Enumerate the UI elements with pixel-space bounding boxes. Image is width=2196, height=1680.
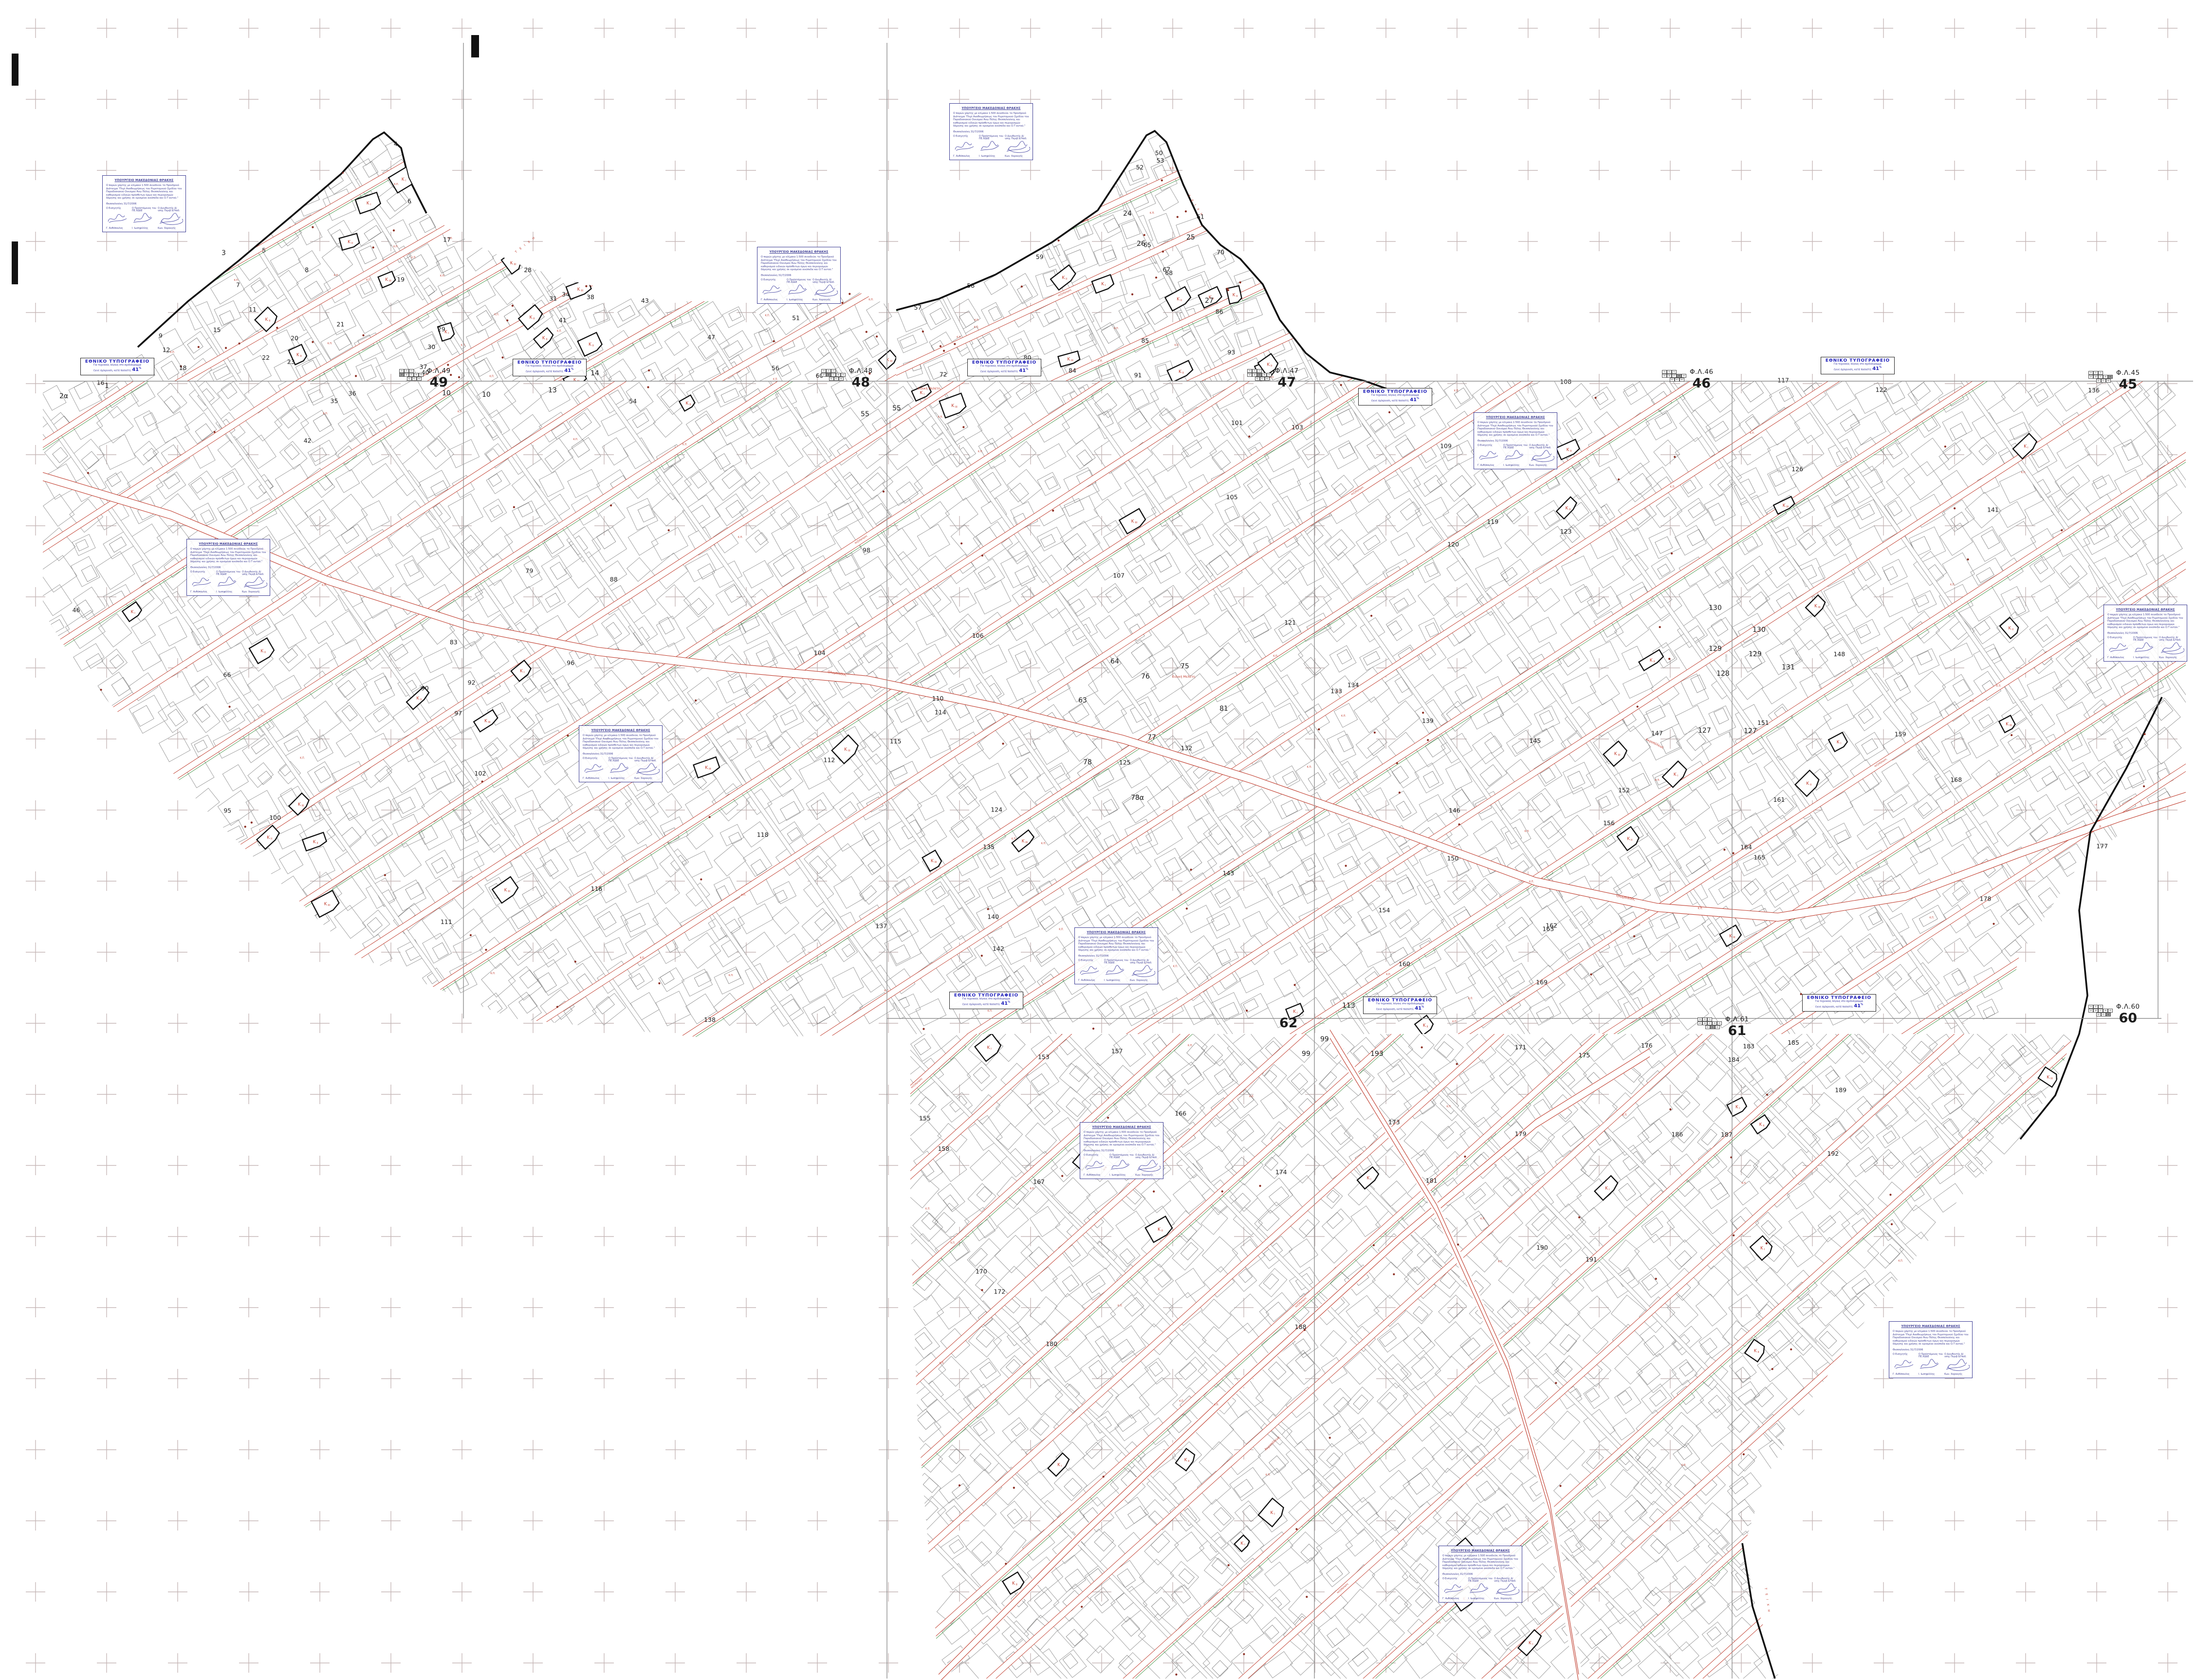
block-number: 109 xyxy=(1440,443,1452,450)
block-number: 166 xyxy=(1175,1109,1186,1117)
block-number: 132 xyxy=(1181,744,1192,752)
stamp-signature-names: Γ. Ανθόπουλος Ι. Ιωσηφέλλης Κων. Χαραυγή… xyxy=(1477,464,1553,467)
block-number: 128 xyxy=(1716,670,1730,678)
stamp-signature-names: Γ. Ανθόπουλος Ι. Ιωσηφέλλης Κων. Χαραυγή… xyxy=(106,227,182,230)
reduction-percent: 41 xyxy=(1410,397,1417,403)
block-number: 53 xyxy=(1156,157,1164,164)
sheet-number: 62 xyxy=(1279,1016,1298,1030)
block-number: 58 xyxy=(967,282,975,289)
locator-cell-31: 31 xyxy=(1672,370,1677,374)
printing-office-line2: έγινε σμίκρυνση, κατά ποσοστό, 41% xyxy=(83,367,152,373)
stamp-title: ΥΠΟΥΡΓΕΙΟ ΜΑΚΕΔΟΝΙΑΣ ΘΡΑΚΗΣ xyxy=(1078,931,1154,934)
stamp-date: Θεσσαλονίκη 31/7/2006 xyxy=(1477,440,1553,443)
stamp-body: Ο παρών χάρτης με κλίμακα 1:500 συνοδεύε… xyxy=(2107,613,2183,629)
printing-office-line2: έγινε σμίκρυνση, κατά ποσοστό, 41% xyxy=(1366,1006,1435,1012)
stamp-body: Ο παρών χάρτης με κλίμακα 1:500 συνοδεύε… xyxy=(106,184,182,200)
locator-cell-45: 45 xyxy=(2108,1009,2113,1013)
sheet-label-47: 3332314948474645626160 Φ.Λ.47 47 xyxy=(1247,368,1299,389)
kp-mark: Κ.Π. xyxy=(1175,344,1180,347)
stamp-signature-names: Γ. Ανθόπουλος Ι. Ιωσηφέλλης Κων. Χαραυγή… xyxy=(583,777,659,780)
block-number: 147 xyxy=(1651,729,1663,737)
street-name-label: Ειδική Μελέτη xyxy=(918,387,941,390)
block-number: 34 xyxy=(562,291,570,298)
kp-mark: Κ.Π. xyxy=(1525,830,1530,833)
stamp-body: Ο παρών χάρτης με κλίμακα 1:500 συνοδεύε… xyxy=(761,256,837,272)
block-number: 29 xyxy=(438,325,445,332)
block-number: 83 xyxy=(450,638,458,646)
block-number: 84 xyxy=(1069,367,1076,374)
kp-mark: Κ.Π. xyxy=(1967,1139,1972,1142)
kp-mark: Κ.Π. xyxy=(1681,1464,1686,1467)
block-number: 186 xyxy=(1671,1130,1683,1138)
block-number: 169 xyxy=(1536,978,1548,986)
kp-mark: Κ.Π. xyxy=(1929,916,1934,919)
block-number: 116 xyxy=(591,885,603,892)
kp-mark: Κ.Π. xyxy=(978,450,983,453)
street-label: πεζόδρομος xyxy=(624,56,638,67)
locator-cell-32: 32 xyxy=(1667,370,1672,374)
block-number: 21 xyxy=(336,320,344,328)
block-number: 77 xyxy=(1147,734,1156,741)
kp-mark: Κ.Π. xyxy=(1498,1260,1503,1263)
reduction-percent: 41 xyxy=(1019,368,1026,373)
block-number: 178 xyxy=(1980,895,1992,903)
sheet-code: Φ.Λ.47 xyxy=(1275,368,1299,375)
kp-mark: Κ.Π. xyxy=(300,757,305,759)
kp-mark: Κ.Π. xyxy=(1898,1259,1903,1262)
stamp-date: Θεσσαλονίκη 31/7/2006 xyxy=(1084,1149,1160,1152)
sheet-code: Φ.Λ.46 xyxy=(1690,369,1714,376)
block-number: 52 xyxy=(1136,164,1144,171)
stamp-date: Θεσσαλονίκη 31/7/2006 xyxy=(953,130,1029,133)
block-number: 126 xyxy=(1791,465,1803,473)
block-number: 105 xyxy=(1226,494,1238,501)
sheet-code: Φ.Λ.49 xyxy=(427,368,451,375)
block-number: 104 xyxy=(814,649,826,656)
locator-cell-32: 32 xyxy=(2093,1005,2098,1009)
block-number: 150 xyxy=(1447,855,1458,862)
block-number: 7 xyxy=(236,281,240,288)
block-number: 31 xyxy=(549,295,557,302)
stamp-body: Ο παρών χάρτης με κλίμακα 1:500 συνοδεύε… xyxy=(1084,1131,1160,1147)
sheet-number: 60 xyxy=(2119,1012,2138,1025)
ministry-approval-stamp: ΥΠΟΥΡΓΕΙΟ ΜΑΚΕΔΟΝΙΑΣ ΘΡΑΚΗΣ Ο παρών χάρτ… xyxy=(1474,412,1557,469)
kp-mark: Κ.Π. xyxy=(974,326,979,329)
kp-mark: Κ.Π. xyxy=(1480,1218,1485,1220)
block-number: 122 xyxy=(1876,386,1887,393)
block-number: 5 xyxy=(262,246,266,254)
kp-mark: Κ.Π. xyxy=(765,314,770,317)
printing-office-line2: έγινε σμίκρυνση, κατά ποσοστό, 41% xyxy=(1823,366,1892,372)
ministry-approval-stamp: ΥΠΟΥΡΓΕΙΟ ΜΑΚΕΔΟΝΙΑΣ ΘΡΑΚΗΣ Ο παρών χάρτ… xyxy=(579,725,663,782)
stamp-title: ΥΠΟΥΡΓΕΙΟ ΜΑΚΕΔΟΝΙΑΣ ΘΡΑΚΗΣ xyxy=(953,107,1029,110)
stamp-signature-roles: Ο Εισηγητής Ο Προϊστάμενος του ΠΕ.ΧΩΔΕ Ο… xyxy=(953,135,1029,140)
block-number: 180 xyxy=(1046,1340,1057,1348)
block-number: 90 xyxy=(421,684,429,692)
street-name-label: Ειδική Μελέτη xyxy=(1172,675,1195,679)
stamp-date: Θεσσαλονίκη 31/7/2006 xyxy=(1078,955,1154,958)
block-number: 140 xyxy=(987,913,999,920)
locator-cell-62: 62 xyxy=(829,377,834,381)
stamp-signature-names: Γ. Ανθόπουλος Ι. Ιωσηφέλλης Κων. Χαραυγή… xyxy=(2107,657,2183,659)
block-number: 185 xyxy=(1788,1039,1799,1046)
stamp-body: Ο παρών χάρτης με κλίμακα 1:500 συνοδεύε… xyxy=(1442,1554,1518,1570)
block-number: 164 xyxy=(1740,844,1752,851)
block-number: 130 xyxy=(1753,626,1766,634)
stamp-signature-roles: Ο Εισηγητής Ο Προϊστάμενος του ΠΕ.ΧΩΔΕ Ο… xyxy=(583,757,659,762)
block-number: 4 xyxy=(394,140,398,148)
locator-cell-61: 61 xyxy=(834,377,839,381)
national-printing-office-box: ΕΘΝΙΚΟ ΤΥΠΟΓΡΑΦΕΙΟ Για τεχνικούς λόγους … xyxy=(1363,997,1437,1014)
kp-mark: Κ.Π. xyxy=(1249,1095,1254,1098)
locator-cell-33: 33 xyxy=(2088,1005,2093,1009)
locator-cell-45: 45 xyxy=(1681,374,1686,378)
locator-cell-33: 33 xyxy=(1247,369,1252,373)
printing-office-title: ΕΘΝΙΚΟ ΤΥΠΟΓΡΑΦΕΙΟ xyxy=(515,360,584,365)
ministry-approval-stamp: ΥΠΟΥΡΓΕΙΟ ΜΑΚΕΔΟΝΙΑΣ ΘΡΑΚΗΣ Ο παρών χάρτ… xyxy=(1889,1321,1973,1378)
kp-mark: Κ.Π. xyxy=(1041,842,1046,845)
block-number: 25 xyxy=(1186,234,1195,241)
signature-squiggles xyxy=(583,763,660,775)
signature-squiggles xyxy=(106,213,183,225)
locator-cell-46: 46 xyxy=(1262,373,1267,377)
reduction-percent: 41 xyxy=(1872,366,1879,371)
kp-mark: Κ.Π. xyxy=(1970,700,1975,703)
reduction-percent: 41 xyxy=(1001,1001,1008,1006)
block-number: 3 xyxy=(221,249,226,257)
locator-cell-60: 60 xyxy=(2106,379,2111,383)
stamp-date: Θεσσαλονίκη 31/7/2006 xyxy=(190,566,266,569)
block-number: 123 xyxy=(1560,528,1572,535)
locator-cell-45: 45 xyxy=(1267,373,1272,377)
block-number: 79 xyxy=(525,567,533,574)
block-number: 170 xyxy=(976,1268,987,1275)
stamp-body: Ο παρών χάρτης με κλίμακα 1:500 συνοδεύε… xyxy=(953,112,1029,128)
block-number: 47 xyxy=(707,333,715,341)
stamp-signature-roles: Ο Εισηγητής Ο Προϊστάμενος του ΠΕ.ΧΩΔΕ Ο… xyxy=(190,571,266,576)
block-number: 190 xyxy=(1536,1244,1548,1251)
block-number: 135 xyxy=(983,843,995,850)
scan-fiducial-mark xyxy=(12,241,18,284)
block-number: 172 xyxy=(994,1288,1005,1295)
ministry-approval-stamp: ΥΠΟΥΡΓΕΙΟ ΜΑΚΕΔΟΝΙΑΣ ΘΡΑΚΗΣ Ο παρών χάρτ… xyxy=(2104,605,2187,662)
sheet-label-48: 3332314948474645626160 Φ.Λ.48 48 xyxy=(821,368,873,389)
kp-mark: Κ.Π. xyxy=(491,972,496,975)
block-number: 38 xyxy=(587,294,594,301)
locator-cell-60: 60 xyxy=(1265,377,1270,381)
block-number: 50 xyxy=(1155,149,1163,157)
national-printing-office-box: ΕΘΝΙΚΟ ΤΥΠΟΓΡΑΦΕΙΟ Για τεχνικούς λόγους … xyxy=(1358,388,1432,406)
printing-office-line2: έγινε σμίκρυνση, κατά ποσοστό, 41% xyxy=(970,368,1039,374)
locator-cell-49: 49 xyxy=(1662,374,1667,378)
block-number: 102 xyxy=(475,770,486,777)
kp-mark: Κ.Π. xyxy=(988,1010,993,1013)
ministry-approval-stamp: ΥΠΟΥΡΓΕΙΟ ΜΑΚΕΔΟΝΙΑΣ ΘΡΑΚΗΣ Ο παρών χάρτ… xyxy=(949,103,1033,160)
block-number: 119 xyxy=(1487,518,1498,525)
kp-mark: Κ.Π. xyxy=(940,1362,944,1365)
block-number: 127 xyxy=(1698,727,1711,735)
block-number: 43 xyxy=(641,297,649,304)
locator-cell-45: 45 xyxy=(1717,1021,1722,1025)
kp-mark: Κ.Π. xyxy=(411,256,416,259)
sheet-label-60: 3332314948474645626160 Φ.Λ.60 60 xyxy=(2088,1004,2140,1025)
stamp-date: Θεσσαλονίκη 31/7/2006 xyxy=(106,203,182,205)
scan-fiducial-mark xyxy=(471,35,479,57)
block-number: 175 xyxy=(1579,1052,1590,1059)
locator-cell-45: 45 xyxy=(419,373,424,377)
block-number: 113 xyxy=(1342,1002,1355,1010)
block-number: 46 xyxy=(73,607,80,614)
block-number: 129 xyxy=(1709,645,1722,653)
national-printing-office-box: ΕΘΝΙΚΟ ΤΥΠΟΓΡΑΦΕΙΟ Για τεχνικούς λόγους … xyxy=(949,992,1023,1009)
block-number: 131 xyxy=(1782,664,1795,671)
block-number: 85 xyxy=(1141,337,1149,344)
locator-cell-46: 46 xyxy=(1677,374,1681,378)
block-number: 137 xyxy=(875,922,887,929)
street-label: πεζόδρομος xyxy=(730,1181,744,1191)
sheet-locator-grid: 3332314948474645626160 xyxy=(399,369,424,381)
kp-mark: Κ.Π. xyxy=(741,894,746,897)
kp-mark: Κ.Π. xyxy=(1118,1304,1123,1307)
printing-office-title: ΕΘΝΙΚΟ ΤΥΠΟΓΡΑΦΕΙΟ xyxy=(1361,389,1430,394)
sheet-locator-grid: 3332314948474645626160 xyxy=(1247,369,1272,381)
printing-office-title: ΕΘΝΙΚΟ ΤΥΠΟΓΡΑΦΕΙΟ xyxy=(970,360,1039,365)
block-number: 192 xyxy=(1827,1150,1839,1157)
kp-mark: Κ.Π. xyxy=(1454,389,1459,392)
block-number: 103 xyxy=(1292,424,1303,431)
block-number: 35 xyxy=(331,397,338,405)
block-number: 88 xyxy=(610,576,618,583)
block-number: 55 xyxy=(861,410,869,418)
locator-cell-62: 62 xyxy=(407,377,412,381)
sheet-code: Φ.Λ.45 xyxy=(2116,370,2140,377)
kp-mark: Κ.Π. xyxy=(1670,485,1675,488)
block-number: 154 xyxy=(1379,906,1390,914)
stamp-signature-names: Γ. Ανθόπουλος Ι. Ιωσηφέλλης Κων. Χαραυγή… xyxy=(761,299,837,301)
kp-mark: Κ.Π. xyxy=(1085,219,1089,222)
printing-office-line2: έγινε σμίκρυνση, κατά ποσοστό, 41% xyxy=(1361,397,1430,404)
block-number: 187 xyxy=(1721,1131,1733,1138)
kp-mark: Κ.Π. xyxy=(1064,1339,1069,1342)
street-label: πεζόδρομος xyxy=(1974,1615,1987,1627)
kp-mark: Κ.Π. xyxy=(1266,1474,1271,1477)
block-number: 19 xyxy=(397,276,405,283)
kp-mark: Κ.Π. xyxy=(1307,766,1312,769)
stamp-title: ΥΠΟΥΡΓΕΙΟ ΜΑΚΕΔΟΝΙΑΣ ΘΡΑΚΗΣ xyxy=(2107,608,2183,611)
block-number: 1 xyxy=(105,382,109,390)
locator-cell-33: 33 xyxy=(2088,371,2093,375)
signature-squiggles xyxy=(761,284,838,297)
block-number: 121 xyxy=(1284,619,1296,626)
kp-mark: Κ.Π. xyxy=(1341,715,1346,718)
kp-mark: Κ.Π. xyxy=(975,319,979,322)
kp-mark: Κ.Π. xyxy=(1012,837,1016,840)
locator-cell-62: 62 xyxy=(2096,1013,2101,1016)
kp-mark: Κ.Π. xyxy=(1098,360,1103,363)
block-number: 125 xyxy=(1119,759,1131,766)
locator-cell-49: 49 xyxy=(1698,1021,1702,1025)
fabric-lower-band: πεζόδρομοςπεζόδρομοςπεζόδρομοςπεζόδρομος… xyxy=(581,437,2196,1680)
ministry-approval-stamp: ΥΠΟΥΡΓΕΙΟ ΜΑΚΕΔΟΝΙΑΣ ΘΡΑΚΗΣ Ο παρών χάρτ… xyxy=(1439,1546,1522,1603)
stamp-date: Θεσσαλονίκη 31/7/2006 xyxy=(2107,632,2183,635)
stamp-signature-roles: Ο Εισηγητής Ο Προϊστάμενος του ΠΕ.ΧΩΔΕ Ο… xyxy=(1477,444,1553,449)
block-number: 86 xyxy=(1216,308,1223,315)
kp-mark: Κ.Π. xyxy=(1114,327,1119,330)
sheet-locator-grid: 3332314948474645626160 xyxy=(2088,371,2113,383)
locator-cell-45: 45 xyxy=(841,373,846,377)
block-number: 93 xyxy=(1227,349,1235,356)
sheet-number: 61 xyxy=(1728,1024,1747,1037)
locator-cell-60: 60 xyxy=(1679,378,1684,382)
block-number: 110 xyxy=(932,695,944,702)
locator-cell-47: 47 xyxy=(409,373,414,377)
locator-cell-49: 49 xyxy=(2088,375,2093,379)
sheet-locator-grid: 3332314948474645626160 xyxy=(821,369,846,381)
printing-office-line2: έγινε σμίκρυνση, κατά ποσοστό, 41% xyxy=(515,368,584,374)
block-number: 59 xyxy=(1036,253,1044,260)
block-number: 148 xyxy=(1833,650,1845,658)
kp-mark: Κ.Π. xyxy=(738,536,743,539)
block-number: 99 xyxy=(1320,1035,1329,1043)
printing-office-title: ΕΘΝΙΚΟ ΤΥΠΟΓΡΑΦΕΙΟ xyxy=(1805,996,1874,1000)
national-printing-office-box: ΕΘΝΙΚΟ ΤΥΠΟΓΡΑΦΕΙΟ Για τεχνικούς λόγους … xyxy=(80,358,154,375)
stamp-title: ΥΠΟΥΡΓΕΙΟ ΜΑΚΕΔΟΝΙΑΣ ΘΡΑΚΗΣ xyxy=(1084,1126,1160,1129)
kp-mark: Κ.Π. xyxy=(495,313,499,316)
block-number: 117 xyxy=(1777,377,1789,384)
kp-mark: Κ.Π. xyxy=(366,279,371,282)
stamp-signature-roles: Ο Εισηγητής Ο Προϊστάμενος του ΠΕ.ΧΩΔΕ Ο… xyxy=(761,279,837,284)
scan-fiducial-mark xyxy=(12,54,18,86)
block-number: 138 xyxy=(704,1016,716,1023)
block-number: 11 xyxy=(249,306,257,313)
block-number: 92 xyxy=(468,679,476,686)
block-number: 120 xyxy=(1447,540,1459,548)
kp-mark: Κ.Π. xyxy=(938,416,943,419)
coordinate-tick: 10300 xyxy=(1310,421,1313,428)
kp-mark: Κ.Π. xyxy=(322,584,327,587)
block-number: 115 xyxy=(890,738,902,745)
coordinate-tick: 10050 xyxy=(1729,730,1732,738)
block-number: 176 xyxy=(1641,1042,1653,1049)
locator-cell-47: 47 xyxy=(1672,374,1677,378)
block-number: 51 xyxy=(792,314,800,322)
block-number: 81 xyxy=(1219,705,1228,713)
walls-label: Τ Ε Ι Χ Η xyxy=(1764,1587,1771,1613)
block-number: 157 xyxy=(1111,1048,1123,1055)
kp-mark: Κ.Π. xyxy=(1742,1182,1747,1185)
street-label: πεζόδρομος xyxy=(550,377,565,387)
national-printing-office-box: ΕΘΝΙΚΟ ΤΥΠΟΓΡΑΦΕΙΟ Για τεχνικούς λόγους … xyxy=(1802,994,1876,1012)
stamp-signature-roles: Ο Εισηγητής Ο Προϊστάμενος του ΠΕ.ΧΩΔΕ Ο… xyxy=(1442,1578,1518,1583)
block-number: 139 xyxy=(1422,717,1434,724)
block-number: 15 xyxy=(213,326,221,333)
block-number: 156 xyxy=(1603,819,1615,827)
stamp-signature-roles: Ο Εισηγητής Ο Προϊστάμενος του ΠΕ.ΧΩΔΕ Ο… xyxy=(2107,637,2183,642)
stamp-signature-roles: Ο Εισηγητής Ο Προϊστάμενος του ΠΕ.ΧΩΔΕ Ο… xyxy=(1893,1353,1969,1358)
block-number: 165 xyxy=(1753,853,1765,861)
kp-mark: Κ.Π. xyxy=(640,957,645,960)
block-number: 108 xyxy=(1560,378,1571,386)
kp-mark: Κ.Π. xyxy=(1655,779,1660,782)
signature-squiggles xyxy=(1084,1160,1161,1172)
kp-mark: Κ.Π. xyxy=(957,336,961,339)
stamp-signature-roles: Ο Εισηγητής Ο Προϊστάμενος του ΠΕ.ΧΩΔΕ Ο… xyxy=(106,207,182,212)
printing-office-line2: έγινε σμίκρυνση, κατά ποσοστό, 41% xyxy=(952,1001,1021,1007)
national-printing-office-box: ΕΘΝΙΚΟ ΤΥΠΟΓΡΑΦΕΙΟ Για τεχνικούς λόγους … xyxy=(967,359,1041,376)
block-number: 168 xyxy=(1950,776,1962,783)
locator-cell-61: 61 xyxy=(2101,1013,2106,1016)
locator-cell-32: 32 xyxy=(2093,371,2098,375)
block-number: 17 xyxy=(443,236,451,243)
block-number: 66 xyxy=(223,671,231,679)
kp-mark: Κ.Π. xyxy=(1173,965,1178,968)
stamp-signature-names: Γ. Ανθόπουλος Ι. Ιωσηφέλλης Κων. Χαραυγή… xyxy=(1078,979,1154,982)
signature-squiggles xyxy=(190,576,267,589)
kp-mark: Κ.Π. xyxy=(1698,907,1703,910)
block-number: 6 xyxy=(407,197,411,204)
locator-cell-33: 33 xyxy=(399,369,404,373)
block-number: 163 xyxy=(1542,925,1554,933)
block-number: 91 xyxy=(1134,371,1142,379)
block-number: 96 xyxy=(567,659,574,666)
block-number: 75 xyxy=(1181,663,1189,670)
stamp-signature-names: Γ. Ανθόπουλος Ι. Ιωσηφέλλης Κων. Χαραυγή… xyxy=(1084,1174,1160,1177)
block-number: 173 xyxy=(1388,1119,1400,1126)
block-number: 72 xyxy=(940,371,947,378)
fabric-main-band: πεζόδρομοςπεζόδρομοςπεζόδρομοςπεζόδρομος… xyxy=(0,0,2196,1680)
block-number: 61 xyxy=(1197,213,1204,221)
signature-squiggles xyxy=(1078,965,1155,978)
block-number: 133 xyxy=(1330,687,1342,695)
block-number: 56 xyxy=(772,364,779,371)
sheet-number: 49 xyxy=(430,376,448,389)
cadastral-map-svg: πεζόδρομοςπεζόδρομοςπεζόδρομοςπεζόδρομος… xyxy=(0,0,2196,1680)
kp-mark: Κ.Π. xyxy=(1030,1187,1034,1190)
block-number: 193 xyxy=(1370,1050,1384,1058)
block-number: 30 xyxy=(427,343,435,351)
locator-cell-31: 31 xyxy=(2098,371,2103,375)
ministry-approval-stamp: ΥΠΟΥΡΓΕΙΟ ΜΑΚΕΔΟΝΙΑΣ ΘΡΑΚΗΣ Ο παρών χάρτ… xyxy=(757,247,841,304)
block-number: 55 xyxy=(892,405,901,412)
block-number: 183 xyxy=(1743,1043,1754,1050)
kp-mark: Κ.Π. xyxy=(2021,471,2026,474)
stamp-title: ΥΠΟΥΡΓΕΙΟ ΜΑΚΕΔΟΝΙΑΣ ΘΡΑΚΗΣ xyxy=(1477,416,1553,419)
block-number: 36 xyxy=(349,389,356,397)
sheet-locator-grid: 3332314948474645626160 xyxy=(1698,1017,1722,1029)
locator-cell-62: 62 xyxy=(1705,1025,1710,1029)
locator-cell-46: 46 xyxy=(2103,375,2108,379)
block-number: 107 xyxy=(1113,572,1125,579)
block-number: 20 xyxy=(291,334,298,342)
block-number: 114 xyxy=(935,709,946,716)
locator-cell-47: 47 xyxy=(1707,1021,1712,1025)
block-number: 153 xyxy=(1038,1053,1050,1061)
sheet-locator-grid: 3332314948474645626160 xyxy=(1662,370,1686,382)
signature-squiggles xyxy=(953,141,1030,153)
signature-squiggles xyxy=(2107,642,2184,655)
locator-cell-60: 60 xyxy=(2106,1013,2111,1016)
locator-cell-31: 31 xyxy=(1257,369,1262,373)
map-canvas[interactable]: πεζόδρομοςπεζόδρομοςπεζόδρομοςπεζόδρομος… xyxy=(0,0,2196,1680)
kp-mark: Κ.Π. xyxy=(328,342,332,345)
locator-cell-48: 48 xyxy=(1667,374,1672,378)
sheet-label-61: 3332314948474645626160 Φ.Λ.61 61 xyxy=(1698,1016,1749,1037)
printing-office-title: ΕΘΝΙΚΟ ΤΥΠΟΓΡΑΦΕΙΟ xyxy=(1823,358,1892,363)
block-number: 10 xyxy=(482,391,491,399)
signature-squiggles xyxy=(1477,450,1554,462)
locator-cell-47: 47 xyxy=(831,373,836,377)
locator-cell-46: 46 xyxy=(836,373,841,377)
